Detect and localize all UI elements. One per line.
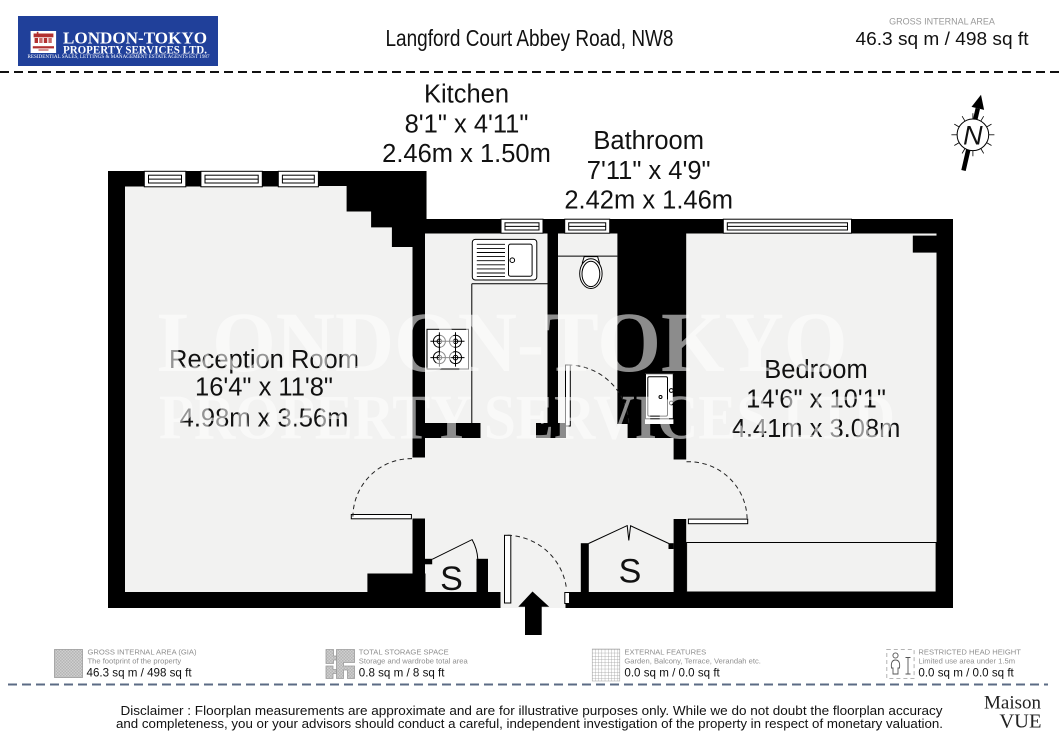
svg-text:Kitchen: Kitchen [424, 81, 509, 109]
svg-text:0.0 sq m / 0.0 sq ft: 0.0 sq m / 0.0 sq ft [918, 667, 1014, 680]
svg-text:GROSS INTERNAL AREA: GROSS INTERNAL AREA [889, 17, 995, 27]
svg-text:46.3 sq m / 498 sq ft: 46.3 sq m / 498 sq ft [87, 667, 193, 680]
svg-text:46.3 sq m / 498 sq ft: 46.3 sq m / 498 sq ft [856, 29, 1029, 49]
svg-text:S: S [619, 553, 642, 591]
svg-text:Bathroom: Bathroom [593, 127, 704, 155]
svg-text:PROPERTY SERVICES LTD: PROPERTY SERVICES LTD [159, 382, 895, 453]
svg-text:Limited use area under 1.5m: Limited use area under 1.5m [918, 656, 1015, 665]
svg-text:2.46m x 1.50m: 2.46m x 1.50m [382, 140, 551, 168]
svg-text:S: S [440, 560, 463, 598]
svg-text:RESIDENTIAL SALES, LETTINGS &: RESIDENTIAL SALES, LETTINGS & MANAGEMENT… [28, 54, 210, 60]
svg-text:The footprint of the property: The footprint of the property [88, 656, 182, 665]
svg-text:GROSS INTERNAL AREA (GIA): GROSS INTERNAL AREA (GIA) [88, 648, 197, 657]
svg-text:RESTRICTED HEAD HEIGHT: RESTRICTED HEAD HEIGHT [918, 648, 1021, 657]
svg-text:2.42m x 1.46m: 2.42m x 1.46m [564, 187, 733, 215]
svg-text:TOTAL STORAGE SPACE: TOTAL STORAGE SPACE [359, 648, 449, 657]
svg-text:N: N [963, 121, 983, 151]
svg-text:EXTERNAL FEATURES: EXTERNAL FEATURES [624, 648, 706, 657]
svg-text:0.8 sq m / 8 sq ft: 0.8 sq m / 8 sq ft [359, 667, 445, 680]
svg-text:VUE: VUE [999, 711, 1041, 733]
svg-text:7'11" x 4'9": 7'11" x 4'9" [587, 157, 711, 185]
svg-text:Garden, Balcony, Terrace, Vera: Garden, Balcony, Terrace, Verandah etc. [624, 656, 761, 665]
svg-text:LONDON-TOKYO: LONDON-TOKYO [158, 294, 848, 390]
svg-text:8'1" x 4'11": 8'1" x 4'11" [405, 110, 529, 138]
svg-text:Storage and wardrobe total are: Storage and wardrobe total area [359, 656, 469, 665]
svg-text:and completeness, you or your: and completeness, you or your advisors s… [116, 716, 943, 731]
svg-text:0.0 sq m / 0.0 sq ft: 0.0 sq m / 0.0 sq ft [624, 667, 720, 680]
svg-text:Langford Court Abbey Road, NW8: Langford Court Abbey Road, NW8 [386, 25, 674, 51]
